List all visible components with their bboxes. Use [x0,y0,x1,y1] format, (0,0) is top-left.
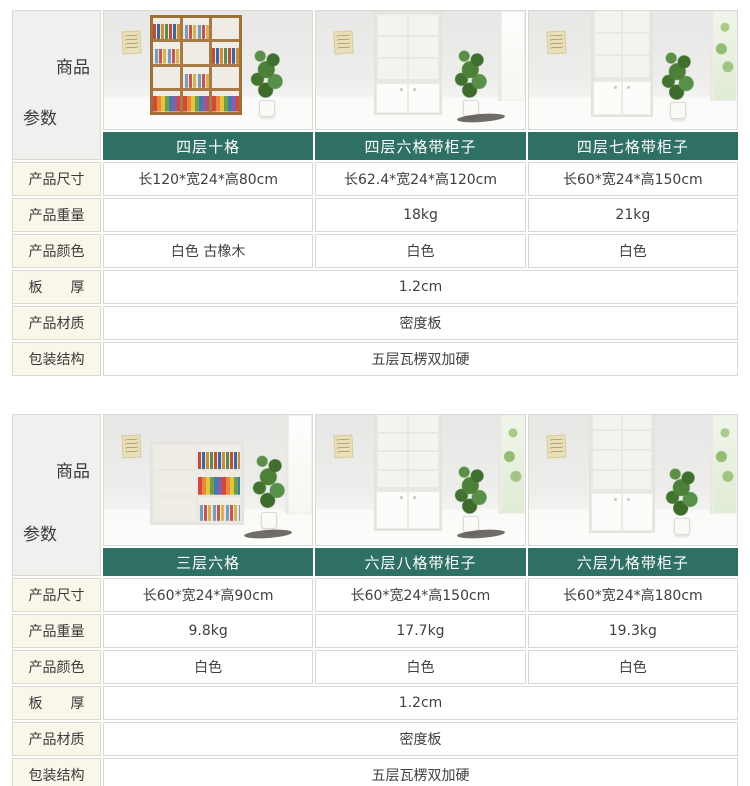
header-diagonal-cell: 商品 参数 [12,414,101,576]
weight-value: 9.8kg [103,614,313,648]
row-label-material: 产品材质 [12,306,101,340]
size-value: 长62.4*宽24*高120cm [315,162,525,196]
sticky-note [334,31,354,55]
plant-pot [261,512,277,529]
bookshelf-illustration [150,15,242,115]
row-label-weight: 产品重量 [12,198,101,232]
sticky-note [546,31,566,55]
packaging-value: 五层瓦楞双加硬 [103,758,738,786]
weight-value [103,198,313,232]
material-value: 密度板 [103,306,738,340]
size-value: 长60*宽24*高150cm [528,162,738,196]
product-photo-tall-white-cabinet-shelf [316,415,524,545]
potted-plant [454,464,488,533]
sticky-note [546,435,566,459]
packaging-value: 五层瓦楞双加硬 [103,342,738,376]
plant-foliage [661,50,695,104]
thickness-value: 1.2cm [103,270,738,304]
product-name-banner: 四层七格带柜子 [528,132,738,160]
bookshelf-illustration [374,11,442,115]
window [498,11,525,101]
sticky-note [334,435,354,459]
row-label-packaging: 包装结构 [12,758,101,786]
header-label-params: 参数 [23,520,57,545]
size-value: 长60*宽24*高180cm [528,578,738,612]
thickness-value: 1.2cm [103,686,738,720]
product-spec-page: 商品 参数 [0,0,750,786]
bookshelf-illustration [591,11,653,117]
material-value: 密度板 [103,722,738,756]
plant-foliage [454,48,488,102]
plant-pot [674,518,690,535]
plant-foliage [454,464,488,518]
product-photo-tall-white-cabinet-shelf [529,415,737,545]
plant-pot [670,102,686,119]
sticky-note [121,435,141,459]
sticky-note [121,31,141,55]
row-label-color: 产品颜色 [12,234,101,268]
potted-plant [252,452,286,529]
size-value: 长120*宽24*高80cm [103,162,313,196]
potted-plant [665,466,699,535]
product-name-banner: 四层六格带柜子 [315,132,525,160]
row-label-color: 产品颜色 [12,650,101,684]
product-photo-short-white-shelf [104,415,312,545]
bookshelf-illustration [150,441,244,525]
potted-plant [661,50,695,119]
product-photo-wood-bookshelf [104,11,312,129]
plant-foliage [250,48,284,102]
product-photo-tall-white-cabinet-shelf [529,11,737,129]
row-label-weight: 产品重量 [12,614,101,648]
header-label-params: 参数 [23,104,57,129]
row-label-packaging: 包装结构 [12,342,101,376]
row-label-material: 产品材质 [12,722,101,756]
spec-table-bottom: 商品 参数 [10,412,740,786]
plant-foliage [252,452,286,514]
plant-foliage [665,466,699,520]
product-name-banner: 六层八格带柜子 [315,548,525,576]
row-label-size: 产品尺寸 [12,162,101,196]
bookshelf-illustration [374,415,442,531]
product-name-banner: 六层九格带柜子 [528,548,738,576]
window [498,415,525,514]
color-value: 白色 [315,650,525,684]
weight-value: 21kg [528,198,738,232]
product-name-banner: 三层六格 [103,548,313,576]
bookshelf-illustration [589,415,655,533]
window [285,415,312,514]
size-value: 长60*宽24*高150cm [315,578,525,612]
row-label-size: 产品尺寸 [12,578,101,612]
potted-plant [454,48,488,117]
color-value: 白色 [528,650,738,684]
size-value: 长60*宽24*高90cm [103,578,313,612]
color-value: 白色 [315,234,525,268]
product-name-banner: 四层十格 [103,132,313,160]
header-label-product: 商品 [56,457,90,482]
row-label-thickness: 板 厚 [12,686,101,720]
row-label-thickness: 板 厚 [12,270,101,304]
plant-pot [259,100,275,117]
window [710,11,737,101]
color-value: 白色 [103,650,313,684]
potted-plant [250,48,284,117]
rug [244,528,292,539]
window [710,415,737,514]
weight-value: 17.7kg [315,614,525,648]
spec-table-top: 商品 参数 [10,8,740,378]
header-label-product: 商品 [56,53,90,78]
header-diagonal-cell: 商品 参数 [12,10,101,160]
weight-value: 18kg [315,198,525,232]
product-photo-white-cabinet-shelf [316,11,524,129]
color-value: 白色 [528,234,738,268]
color-value: 白色 古橡木 [103,234,313,268]
weight-value: 19.3kg [528,614,738,648]
